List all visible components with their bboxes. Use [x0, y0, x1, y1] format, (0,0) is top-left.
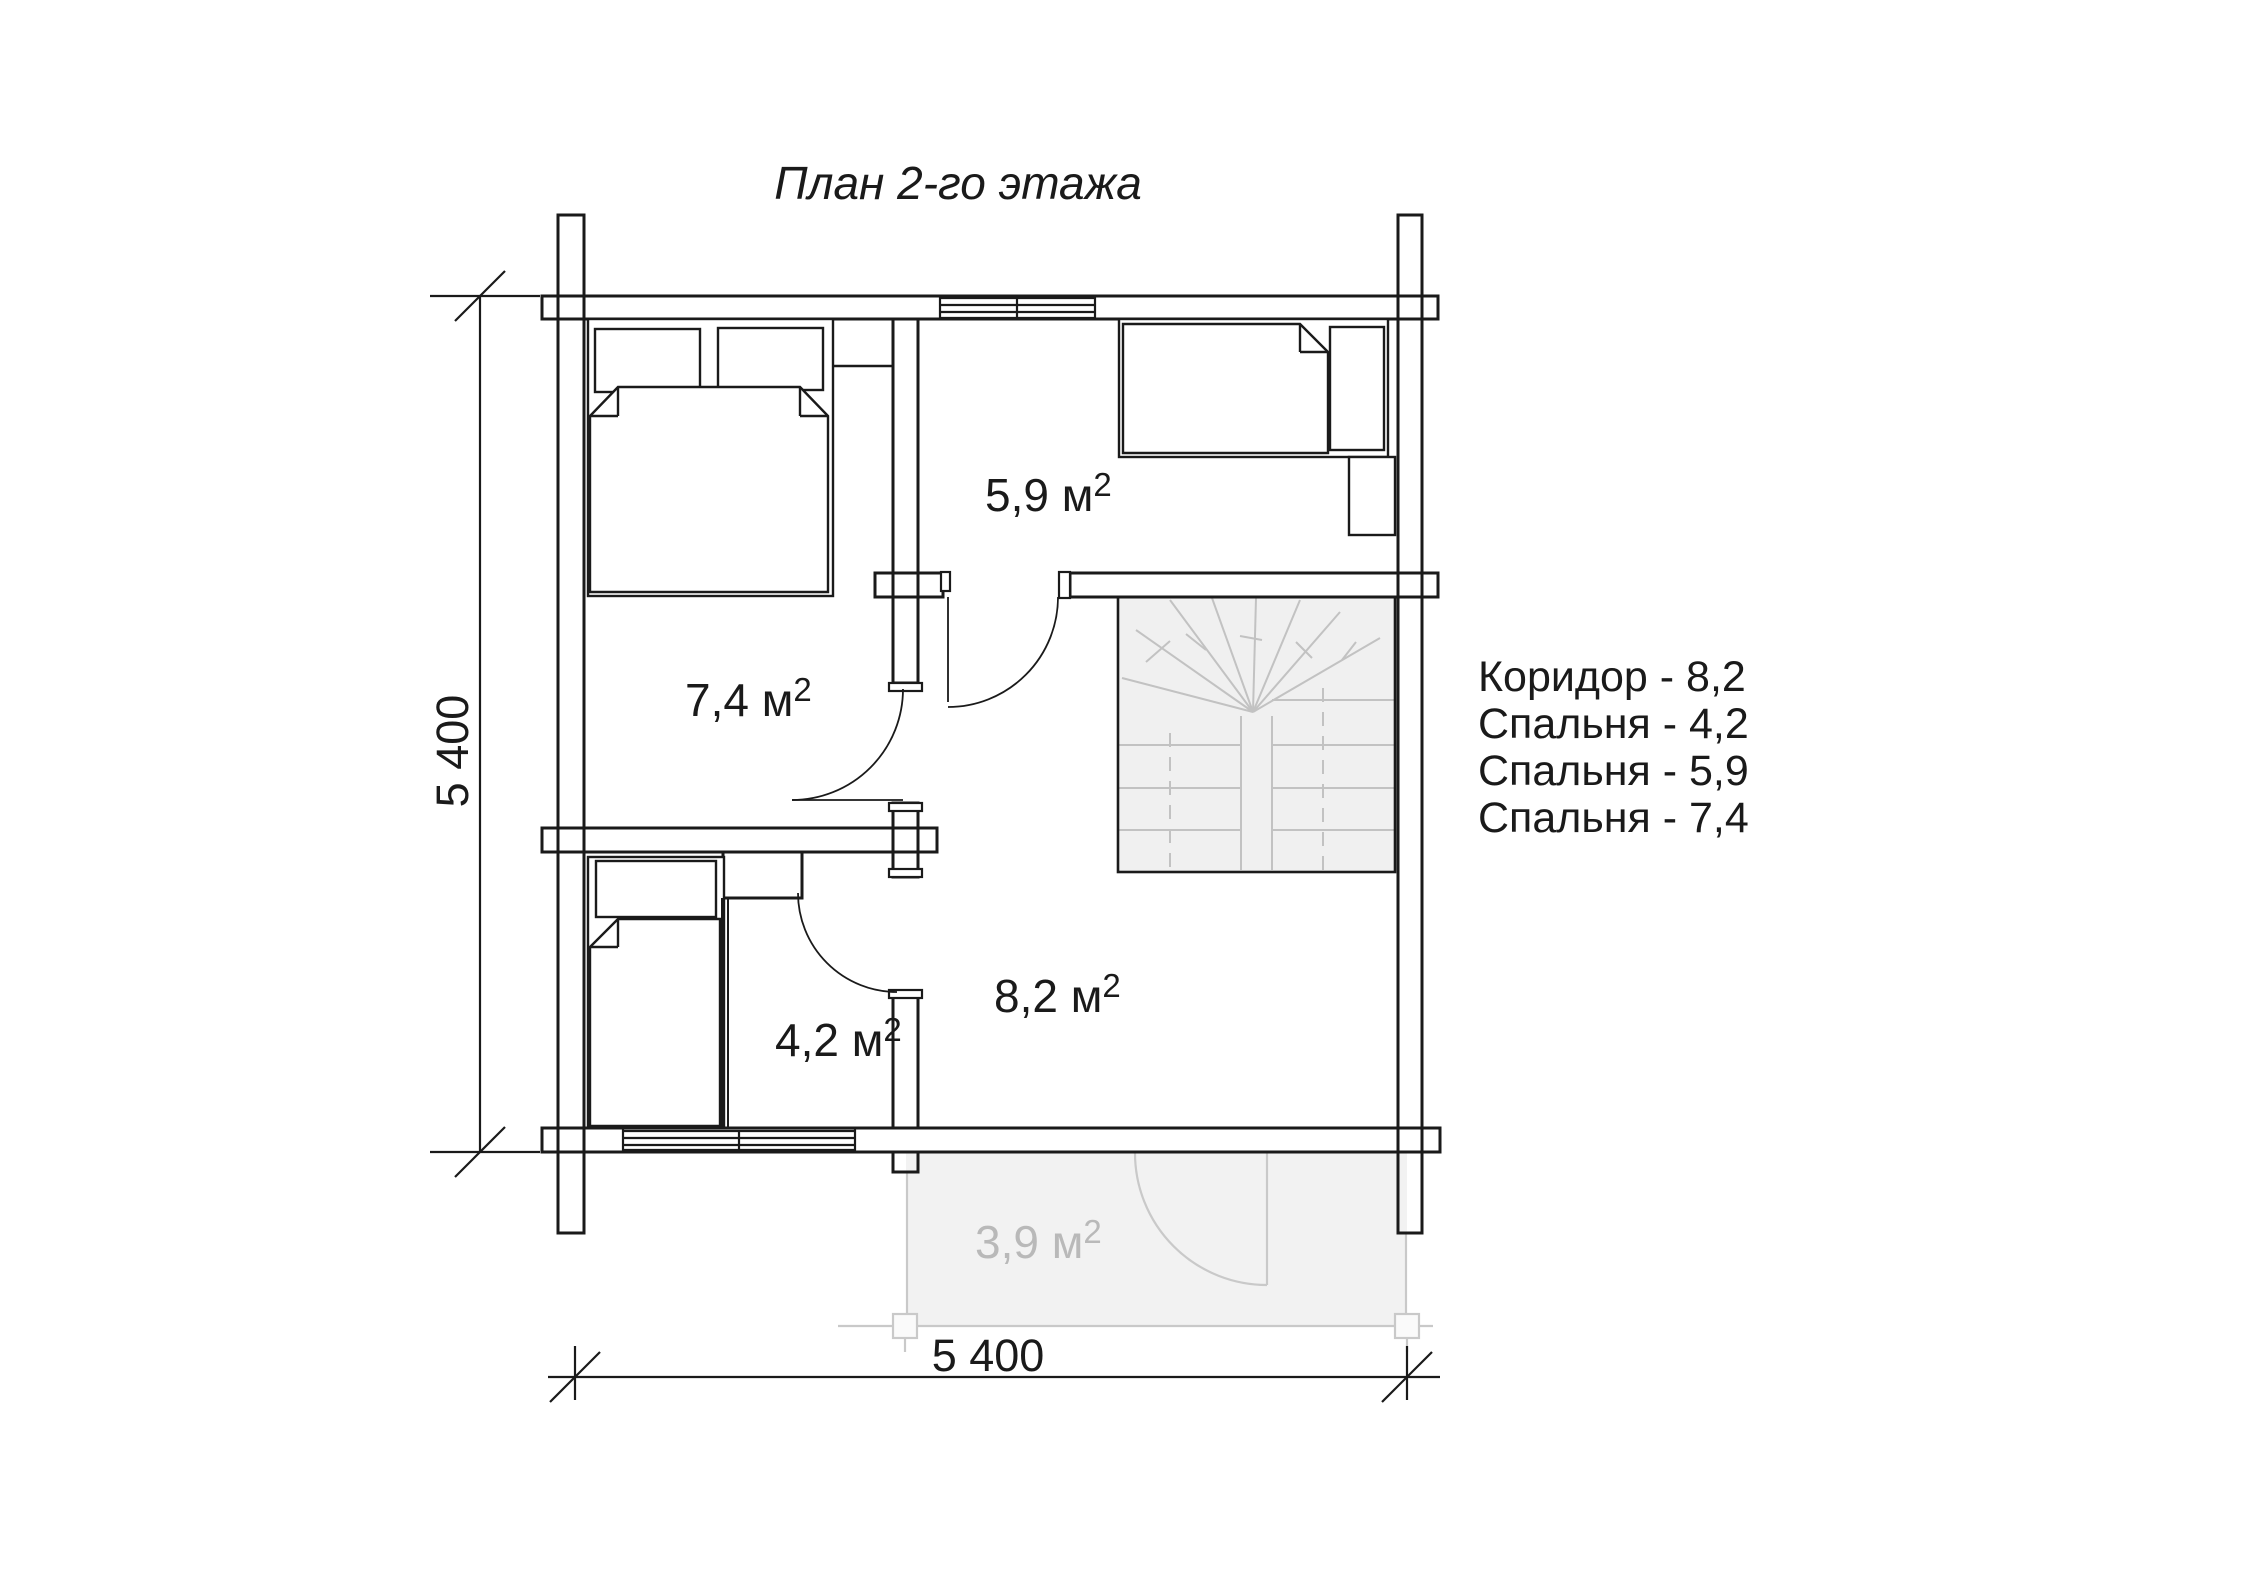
balcony-post-left: [893, 1314, 917, 1338]
window-top: [940, 296, 1095, 320]
pillow: [596, 861, 716, 917]
balcony-post-right: [1395, 1314, 1419, 1338]
duvet: [1123, 324, 1328, 453]
nightstand: [1349, 457, 1395, 535]
single-bed-bottom: [588, 857, 724, 1126]
legend: Коридор - 8,2 Спальня - 4,2 Спальня - 5,…: [1478, 653, 1749, 842]
pillow: [595, 329, 700, 392]
pillow: [718, 328, 823, 390]
room-label-42: 4,2 м2: [775, 1011, 902, 1066]
page-title: План 2-го этажа: [774, 157, 1142, 209]
room-label-39: 3,9 м2: [975, 1213, 1102, 1268]
legend-item: Спальня - 5,9: [1478, 747, 1749, 795]
legend-item: Спальня - 7,4: [1478, 794, 1749, 842]
dimension-label-left: 5 400: [427, 695, 478, 808]
legend-item: Коридор - 8,2: [1478, 653, 1746, 701]
floor-plan-drawing: План 2-го этажа 5,9 м2 7,4 м2 8,2 м2 4,2…: [0, 0, 2245, 1587]
room-label-74: 7,4 м2: [685, 671, 812, 726]
duvet: [590, 387, 828, 592]
room-label-59: 5,9 м2: [985, 466, 1112, 521]
double-bed: [588, 319, 833, 596]
pillow: [1330, 327, 1384, 450]
legend-item: Спальня - 4,2: [1478, 700, 1749, 748]
floor-plan-page: План 2-го этажа 5,9 м2 7,4 м2 8,2 м2 4,2…: [0, 0, 2245, 1587]
duvet: [590, 919, 720, 1126]
room-label-82: 8,2 м2: [994, 967, 1121, 1022]
dimension-label-bottom: 5 400: [932, 1330, 1045, 1381]
window-bottom: [623, 1129, 855, 1152]
